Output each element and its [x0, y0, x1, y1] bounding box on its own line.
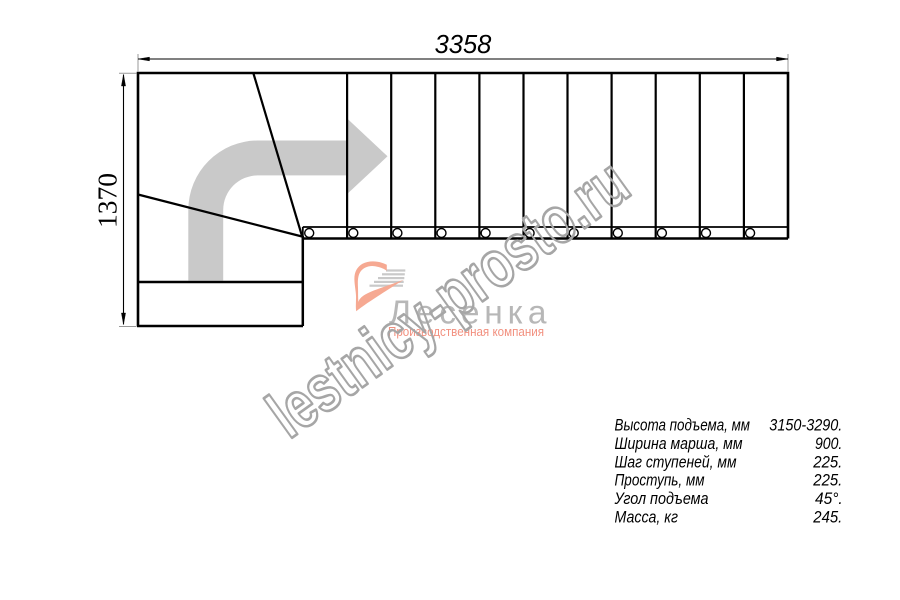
svg-text:245.: 245.	[812, 508, 842, 527]
svg-text:1370: 1370	[92, 173, 123, 228]
svg-text:3150-3290.: 3150-3290.	[769, 416, 842, 435]
svg-text:Высота подъема, мм: Высота подъема, мм	[615, 416, 751, 435]
svg-text:Проступь, мм: Проступь, мм	[615, 471, 705, 490]
svg-text:Шаг ступеней, мм: Шаг ступеней, мм	[615, 452, 737, 471]
svg-text:3358: 3358	[435, 31, 493, 59]
svg-text:Масса, кг: Масса, кг	[615, 508, 679, 527]
svg-text:45°.: 45°.	[815, 489, 843, 508]
svg-text:900.: 900.	[815, 434, 842, 453]
svg-text:Ширина марша, мм: Ширина марша, мм	[615, 434, 743, 453]
svg-text:225.: 225.	[812, 452, 842, 471]
svg-text:225.: 225.	[812, 471, 842, 490]
svg-text:Угол подъема: Угол подъема	[614, 489, 709, 508]
